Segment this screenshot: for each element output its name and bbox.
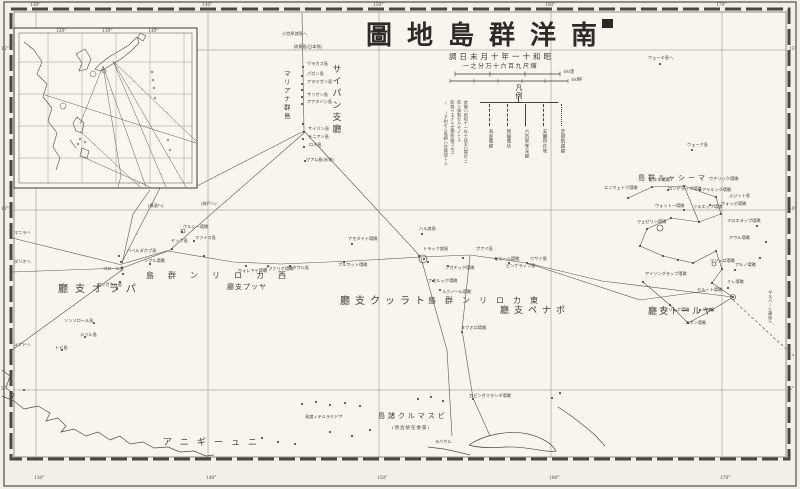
island-label: プルワット環礁 (338, 263, 367, 267)
island-label: アンガウル島 (97, 283, 122, 287)
longitude-label-bottom: 130° (34, 476, 44, 482)
island-label: ウォレアイ環礁 (238, 269, 267, 273)
longitude-label-top: 130° (30, 3, 40, 9)
island-label: ウォットー環礁 (655, 204, 684, 208)
island-label: ミレ環礁 (727, 280, 744, 284)
latitude-label-left: 5° (1, 387, 6, 393)
island-label: ロンゲラップ環礁 (668, 187, 702, 191)
island-label: ロタ島 (309, 143, 322, 147)
island-label: メナドヘ (14, 343, 31, 347)
island-label: ウルシー環礁 (183, 225, 208, 229)
longitude-label-bottom: 160° (549, 476, 559, 482)
legend-line-sample (489, 104, 490, 126)
legend-line-sample (543, 104, 544, 126)
island-label: キリ島 (702, 308, 715, 312)
island-label: ウォッゼ環礁 (721, 202, 746, 206)
yap-branch: 廳支プッヤ (227, 284, 267, 291)
legend-item: 無線電信 (500, 104, 514, 149)
island-label: ウェーク島 (687, 143, 708, 147)
island-label: サリガン島 (307, 93, 328, 97)
legend-item: 海底電線 (482, 104, 496, 149)
longitude-label-bottom: 140° (206, 476, 216, 482)
legend-item-label: 支廳所在地 (542, 129, 548, 154)
island-label: ルクノール環礁 (442, 290, 471, 294)
latitude-label-right: 15° (789, 47, 797, 53)
legend-bracket (480, 102, 558, 103)
island-label: トビ島 (55, 346, 68, 350)
island-label: アイリングラップ環礁 (645, 272, 687, 276)
island-label: コロール島 (103, 267, 124, 271)
island-label: ウチリック環礁 (709, 177, 738, 181)
inset-map (14, 28, 197, 188)
island-label: ヤップ島 (171, 239, 188, 243)
legend-item: 定期航路線 (554, 104, 568, 154)
inset-longitude-label: 130° (102, 29, 112, 35)
island-label: アラマガン島 (307, 80, 332, 84)
saipan-branch: サイパン支廳 (332, 64, 341, 136)
bismarck-islands: 島諸クルマスビ (378, 413, 448, 420)
island-label: グアム島(米領) (306, 158, 334, 162)
island-label: リキエップ環礁 (693, 205, 722, 209)
scale-text: 一之分万十六百九尺縮 (463, 61, 538, 70)
longitude-label-bottom: 150° (377, 476, 387, 482)
island-label: バベルダオブ島 (127, 249, 156, 253)
legend: 凡例 海底電線無線電信六百米等深線支廳所在地定期航路線 本圖ハ昭和十一年十月末日… (440, 82, 575, 170)
island-label: ピンゲラップ島 (506, 264, 535, 268)
island-label: マニラヘ (14, 231, 31, 235)
inset-longitude-label: 140° (148, 29, 158, 35)
west-caroline-islands: 島群ンリロカ西 (146, 272, 300, 280)
island-label: エボン環礁 (685, 321, 706, 325)
legend-item: 六百米等深線 (518, 104, 532, 158)
latitude-label-left: 15° (1, 47, 9, 53)
island-label: アイルック環礁 (702, 188, 731, 192)
truk-branch: 廳支クッラト (340, 297, 430, 307)
latitude-label-right: 10° (789, 207, 797, 213)
legend-item-label: 定期航路線 (560, 129, 566, 154)
island-label: ナモルック環礁 (428, 279, 457, 283)
island-label: テニアン島 (308, 135, 329, 139)
legend-line-sample (507, 104, 508, 126)
island-label: ヌクオロ環礁 (461, 326, 486, 330)
new-guinea: アニギーュニ (163, 438, 265, 447)
island-label: ファイス島 (195, 236, 216, 240)
legend-item: 支廳所在地 (536, 104, 550, 154)
mariana-islands: マリアナ群島 (282, 70, 289, 121)
island-label: パガン島 (307, 72, 324, 76)
latitude-label-left: 10° (1, 207, 9, 213)
island-label: 硫黄島(日本領) (294, 45, 322, 49)
legend-notes: 本圖ハ昭和十一年十月末日現在ニ 依リ調製セルモノトス 航路ハ主ナル定期航路ヲ示ス… (442, 100, 469, 166)
seal-stamp (602, 19, 613, 28)
legend-line-sample (525, 104, 526, 126)
island-label: ギルバート諸島ヘ (768, 290, 772, 324)
island-label: アナタハン島 (307, 100, 332, 104)
island-label: アウル環礁 (729, 236, 750, 240)
island-label: アルノ環礁 (735, 263, 756, 267)
longitude-label-top: 140° (202, 3, 212, 9)
island-label: マジュロ環礁 (710, 259, 735, 263)
longitude-label-top: 170° (716, 3, 726, 9)
legend-title: 凡例 (514, 84, 524, 100)
island-label: ングル環礁 (144, 259, 165, 263)
island-label: トラック諸島 (423, 247, 448, 251)
ponape-branch: 廳支ペナポ (500, 306, 570, 315)
legend-item-label: 無線電信 (506, 129, 512, 149)
longitude-label-bottom: 170° (720, 476, 730, 482)
island-label: (神戸ヘ) (201, 202, 216, 206)
island-label: クサイ島 (530, 257, 547, 261)
inset-longitude-label: 120° (56, 29, 66, 35)
scalebar-miles-label: 100浬 (563, 69, 574, 75)
island-label: ウラカス島 (307, 62, 328, 66)
legend-item-label: 海底電線 (488, 129, 494, 149)
east-caroline-islands: 島群ンリロカ東 (428, 297, 547, 305)
island-label: ビキニ環礁 (649, 178, 670, 182)
longitude-label-top: 150° (373, 3, 383, 9)
island-label: マロエラップ環礁 (727, 219, 761, 223)
island-label: ダバオヘ (14, 260, 31, 264)
island-label: (横濱ヘ) (148, 204, 163, 208)
island-label: モキール環礁 (494, 257, 519, 261)
island-label: カピンガマランギ環礁 (469, 394, 511, 398)
island-label: メジット島 (729, 194, 750, 198)
island-label: 小笠原諸島ヘ (282, 32, 307, 36)
legend-item-label: 六百米等深線 (524, 129, 530, 158)
australian-mandate-note: (領治統任委豪) (392, 426, 430, 431)
island-label: 島諸ィテルラミドア (305, 415, 343, 419)
legend-line-sample (561, 104, 562, 126)
latitude-label-right: 5° (789, 387, 794, 393)
island-label: ヤルート環礁 (697, 288, 722, 292)
map-title: 圖地島群洋南 (366, 15, 612, 52)
island-label: ラバウル (435, 440, 452, 444)
island-label: サタワル島 (288, 266, 309, 270)
island-label: ハル諸島 (419, 227, 436, 231)
island-label: ンガチック環礁 (445, 266, 474, 270)
island-label: ウェーキ島ヘ (648, 56, 673, 60)
island-label: ソンソロール島 (64, 319, 93, 323)
island-label: ポナペ島 (476, 247, 493, 251)
island-label: ナモリック環礁 (660, 308, 689, 312)
island-label: サイパン島 (308, 127, 329, 131)
island-label: ナモヌイト環礁 (348, 237, 377, 241)
island-label: エニウェトク環礁 (604, 186, 638, 190)
island-label: クェゼリン環礁 (637, 220, 666, 224)
longitude-label-top: 160° (545, 3, 555, 9)
island-label: メリル島 (80, 333, 97, 337)
map-sheet: 圖地島群洋南 調日末月十年一十和昭 一之分万十六百九尺縮 100浬 500粁 凡… (0, 0, 800, 489)
